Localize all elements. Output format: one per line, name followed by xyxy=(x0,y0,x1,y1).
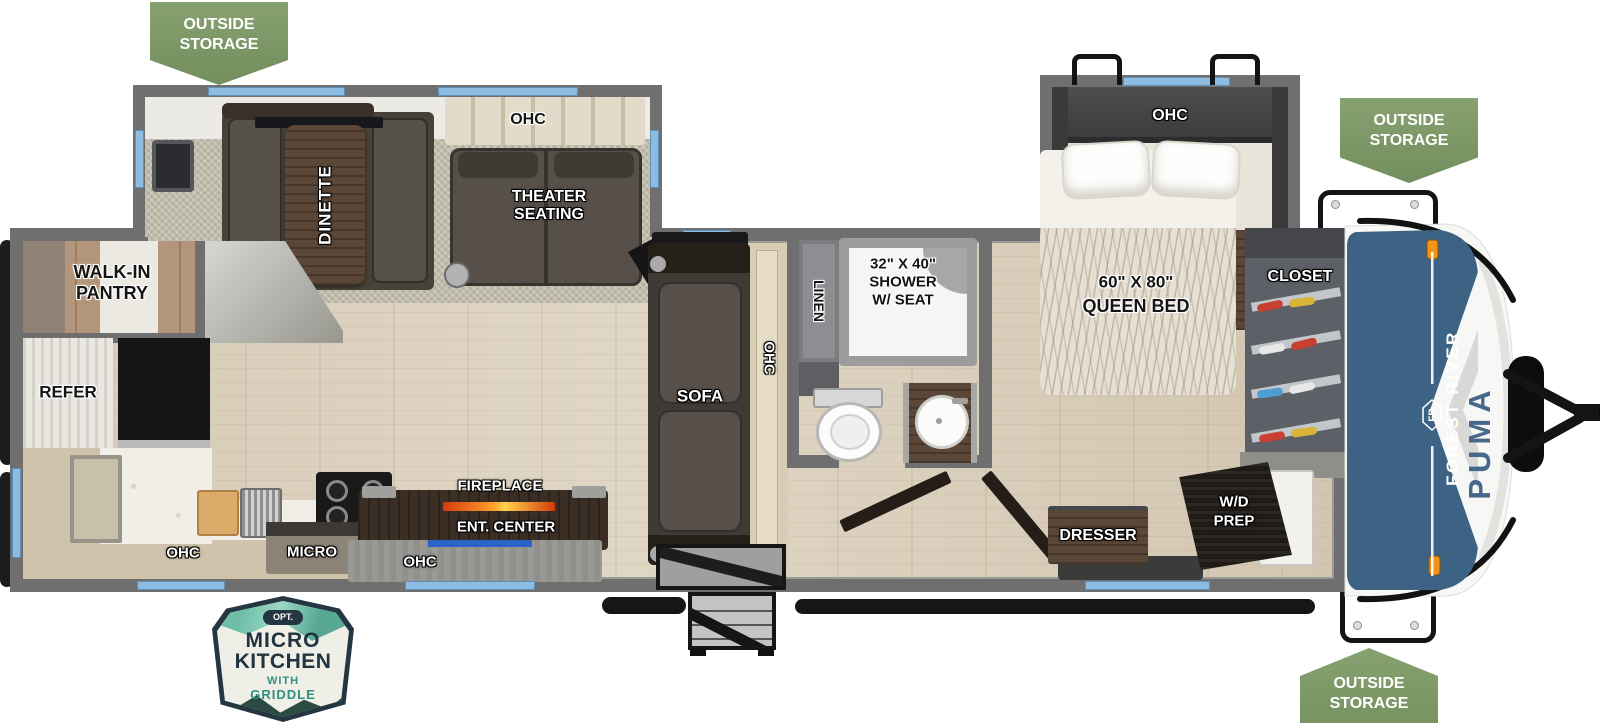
label-bed-line1: 60" X 80" xyxy=(1099,274,1174,291)
slide-window-frame xyxy=(152,140,194,192)
theater-headrest-left xyxy=(458,152,538,178)
faucet-icon xyxy=(952,398,968,404)
label-theater-line1: THEATER xyxy=(512,189,586,205)
pillow xyxy=(1151,140,1242,201)
stabilizer-bar-right xyxy=(795,599,1315,614)
bedroom-slide-sidewall xyxy=(1272,87,1288,237)
sink-drain-icon xyxy=(936,418,942,424)
burner-icon xyxy=(326,480,348,502)
label-fireplace: FIREPLACE xyxy=(457,479,542,494)
label-ent-center: ENT. CENTER xyxy=(457,520,555,535)
badge-opt-pill: OPT. xyxy=(263,610,303,625)
window xyxy=(208,87,345,96)
badge-opt-text: OPT. xyxy=(273,612,293,622)
speaker-pad xyxy=(572,486,606,498)
badge-outside-storage-top-left: OUTSIDE STORAGE xyxy=(150,2,288,85)
sofa-ohc-cabinet xyxy=(750,243,788,565)
toilet xyxy=(816,402,882,462)
label-shower-line3: W/ SEAT xyxy=(872,293,933,308)
stabilizer-bar-left xyxy=(602,597,686,614)
cabinet-door xyxy=(70,455,122,543)
pantry-wall-east xyxy=(195,241,205,343)
microwave-top-trim xyxy=(266,522,358,536)
window xyxy=(135,130,144,188)
badge-text: STORAGE xyxy=(1330,694,1409,714)
window xyxy=(650,130,659,188)
badge-text: STORAGE xyxy=(1370,131,1449,151)
badge-griddle-text: GRIDDLE xyxy=(217,687,349,702)
badge-micro-kitchen: OPT. MICRO KITCHEN WITH GRIDDLE xyxy=(212,596,354,722)
label-bedroom-ohc: OHC xyxy=(1152,108,1188,124)
window xyxy=(1085,581,1210,590)
bedroom-wall xyxy=(979,228,992,468)
bathroom-wall-west xyxy=(787,228,799,468)
label-shower-line2: SHOWER xyxy=(869,275,937,290)
step-foot xyxy=(758,648,774,656)
label-bed-line2: QUEEN BED xyxy=(1082,297,1189,315)
vanity-trim xyxy=(903,383,909,463)
label-dresser: DRESSER xyxy=(1059,528,1136,544)
entry-step-well xyxy=(656,544,786,590)
front-cap: FR FOREST RIVER PUMA xyxy=(1330,160,1600,670)
label-sofa-ohc: OHC xyxy=(762,341,777,374)
label-pantry-line2: PANTRY xyxy=(76,284,148,302)
badge-kitchen-text: KITCHEN xyxy=(217,650,349,674)
step-foot xyxy=(690,648,706,656)
badge-text: OUTSIDE xyxy=(1333,674,1404,694)
bathroom-vanity xyxy=(903,383,977,463)
label-dinette: DINETTE xyxy=(317,165,334,245)
theater-cupholder-icon xyxy=(444,262,470,288)
marker-light-icon xyxy=(1429,556,1440,575)
badge-text: OUTSIDE xyxy=(1373,111,1444,131)
pillow xyxy=(1061,140,1152,201)
label-wd-line2: PREP xyxy=(1214,514,1255,529)
floorplan-canvas: DINETTE OHC THEATER SEATING WALK-IN PANT… xyxy=(0,0,1600,723)
tv-strip xyxy=(428,540,532,547)
badge-with-text: WITH xyxy=(217,675,349,687)
sofa-ohc-inner xyxy=(756,250,778,560)
sofa-knob-icon xyxy=(650,256,666,272)
badge-micro-kitchen-inner: OPT. MICRO KITCHEN WITH GRIDDLE xyxy=(217,601,349,717)
label-refer: REFER xyxy=(39,384,97,401)
slide-bracket-icon xyxy=(1072,54,1122,85)
label-shower-line1: 32" X 40" xyxy=(870,257,936,272)
brand-puma: PUMA xyxy=(1462,384,1497,499)
cap-pinstripe xyxy=(1431,446,1434,576)
cap-pinstripe xyxy=(1431,252,1434,384)
label-closet: CLOSET xyxy=(1268,269,1333,285)
label-micro: MICRO xyxy=(287,545,337,560)
label-linen: LINEN xyxy=(812,280,826,322)
label-sofa: SOFA xyxy=(677,388,723,405)
slide-bracket-icon xyxy=(1210,54,1260,85)
label-ent-ohc: OHC xyxy=(403,555,436,570)
badge-text: STORAGE xyxy=(180,35,259,55)
entry-steps xyxy=(688,592,776,650)
cutting-board xyxy=(197,490,239,536)
brand-forest-river: FOREST RIVER xyxy=(1443,330,1462,486)
label-theater-line2: SEATING xyxy=(514,207,584,223)
speaker-pad xyxy=(362,486,396,498)
hitch-coupler xyxy=(1574,404,1600,421)
step-well-tread xyxy=(656,544,786,590)
window xyxy=(137,581,225,590)
toilet-seat xyxy=(830,414,870,450)
label-wd-line1: W/D xyxy=(1219,495,1248,510)
window xyxy=(438,87,578,96)
window xyxy=(405,581,535,590)
fr-logo-text: FR xyxy=(1428,408,1439,422)
label-kitchen-ohc: OHC xyxy=(166,546,199,561)
sofa-cushion xyxy=(658,410,742,532)
pantry-shelf-strip xyxy=(23,241,65,338)
theater-headrest-right xyxy=(554,152,634,178)
vanity-trim xyxy=(971,383,977,463)
fireplace-flame-strip xyxy=(443,502,555,511)
dinette-bench-right xyxy=(372,118,428,283)
label-pantry-line1: WALK-IN xyxy=(74,263,151,281)
window xyxy=(12,468,21,558)
step-line xyxy=(692,610,776,612)
tall-cabinet xyxy=(118,338,210,450)
label-theater-ohc: OHC xyxy=(510,112,546,128)
badge-text: OUTSIDE xyxy=(183,15,254,35)
